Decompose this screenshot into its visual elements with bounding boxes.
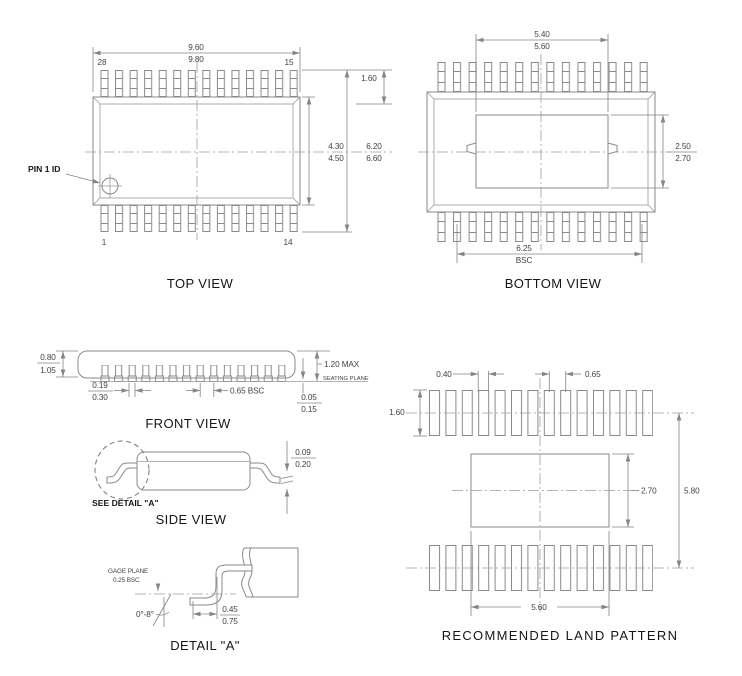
dim-body-thickness-max: 1.05 <box>40 366 56 375</box>
bottom-view: 5.40 5.60 2.50 2.70 6.25 BSC BOTTOM VIEW <box>418 30 697 291</box>
pin-number-14: 14 <box>284 238 293 247</box>
side-lead-left <box>107 463 137 483</box>
dim-land-pad-length: 1.60 <box>389 408 405 417</box>
pin1-leader-arrow <box>66 174 100 183</box>
see-detail-a-label: SEE DETAIL "A" <box>92 498 159 508</box>
caption-bottom-view: BOTTOM VIEW <box>505 276 602 291</box>
bottom-leads-lower-row <box>437 212 648 242</box>
dim-lead-length: 1.60 <box>361 74 377 83</box>
dim-overall-height-max: 6.60 <box>366 154 382 163</box>
dim-pad-height-max: 2.70 <box>675 154 691 163</box>
detail-body-break-line-1 <box>242 548 246 597</box>
top-leads-lower-row <box>100 205 298 232</box>
pin1-label: PIN 1 ID <box>28 164 60 174</box>
caption-front-view: FRONT VIEW <box>145 416 231 431</box>
gage-plane-value: 0.25 BSC <box>113 577 140 584</box>
pin-number-1: 1 <box>102 238 107 247</box>
package-drawing-page: PIN 1 ID 28 15 1 14 9.60 9.80 4.30 4.50 … <box>0 0 742 676</box>
dim-land-center-height: 2.70 <box>641 487 657 496</box>
dim-land-center-width: 5.60 <box>531 603 547 612</box>
dim-lead-pitch: 0.65 BSC <box>230 387 264 396</box>
package-drawing: PIN 1 ID 28 15 1 14 9.60 9.80 4.30 4.50 … <box>0 0 742 676</box>
dim-lead-width-min: 0.19 <box>92 381 108 390</box>
exposed-pad <box>476 115 608 188</box>
side-body-outline <box>137 452 250 490</box>
dim-lead-width-max: 0.30 <box>92 393 108 402</box>
dim-body-width-max: 9.80 <box>188 55 204 64</box>
dim-body-height-max: 4.50 <box>328 154 344 163</box>
caption-top-view: TOP VIEW <box>167 276 234 291</box>
land-pattern-view: 0.40 0.65 1.60 2.70 5.80 5.60 RECOMMENDE… <box>389 370 700 643</box>
side-lead-right <box>250 463 280 483</box>
dim-land-pitch: 0.65 <box>585 370 601 379</box>
dim-foot-length-max: 0.75 <box>222 617 238 626</box>
dim-package-height-max: 1.20 MAX <box>324 360 360 369</box>
exposed-pad-notch-right <box>608 143 617 154</box>
top-leads-upper-row <box>100 70 298 97</box>
detail-a-view: GAGE PLANE 0.25 BSC 0°-8° 0.45 0.75 DETA… <box>108 548 298 653</box>
dim-foot-length-min: 0.45 <box>222 605 238 614</box>
detail-lead <box>190 565 252 605</box>
caption-land-pattern: RECOMMENDED LAND PATTERN <box>442 628 679 643</box>
exposed-pad-notch-left <box>467 143 476 154</box>
pin-number-15: 15 <box>285 58 294 67</box>
dim-lead-thickness-min: 0.09 <box>295 448 311 457</box>
caption-side-view: SIDE VIEW <box>156 512 227 527</box>
bottom-leads-upper-row <box>437 62 648 92</box>
dim-pad-width-min: 5.40 <box>534 30 550 39</box>
gage-plane-label: GAGE PLANE <box>108 568 148 575</box>
caption-detail-a: DETAIL "A" <box>170 638 240 653</box>
dim-standoff-min: 0.05 <box>301 393 317 402</box>
front-leads-row <box>100 365 286 382</box>
dim-lead-span: 6.25 <box>516 244 532 253</box>
dim-body-width-min: 9.60 <box>188 43 204 52</box>
lead-angle-line <box>153 594 171 626</box>
side-view: SEE DETAIL "A" 0.09 0.20 SIDE VIEW <box>92 441 316 527</box>
pin-number-28: 28 <box>98 58 107 67</box>
dim-body-thickness-min: 0.80 <box>40 353 56 362</box>
dim-lead-thickness-max: 0.20 <box>295 460 311 469</box>
dim-body-height-min: 4.30 <box>328 142 344 151</box>
front-view: 0.80 1.05 1.20 MAX SEATING PLANE 0.19 0.… <box>37 351 369 431</box>
dim-pad-width-max: 5.60 <box>534 42 550 51</box>
top-view: PIN 1 ID 28 15 1 14 9.60 9.80 4.30 4.50 … <box>28 43 392 291</box>
lead-angle-value: 0°-8° <box>136 610 154 619</box>
dim-lead-span-note: BSC <box>516 256 533 265</box>
seating-plane-label: SEATING PLANE <box>323 376 369 382</box>
dim-land-row-span: 5.80 <box>684 487 700 496</box>
dim-standoff-max: 0.15 <box>301 405 317 414</box>
dim-land-pad-width: 0.40 <box>436 370 452 379</box>
dim-pad-height-min: 2.50 <box>675 142 691 151</box>
detail-body-break-line-2 <box>249 548 253 597</box>
top-body-inner-outline <box>100 104 293 198</box>
top-body-outline <box>93 97 300 205</box>
dim-overall-height-min: 6.20 <box>366 142 382 151</box>
